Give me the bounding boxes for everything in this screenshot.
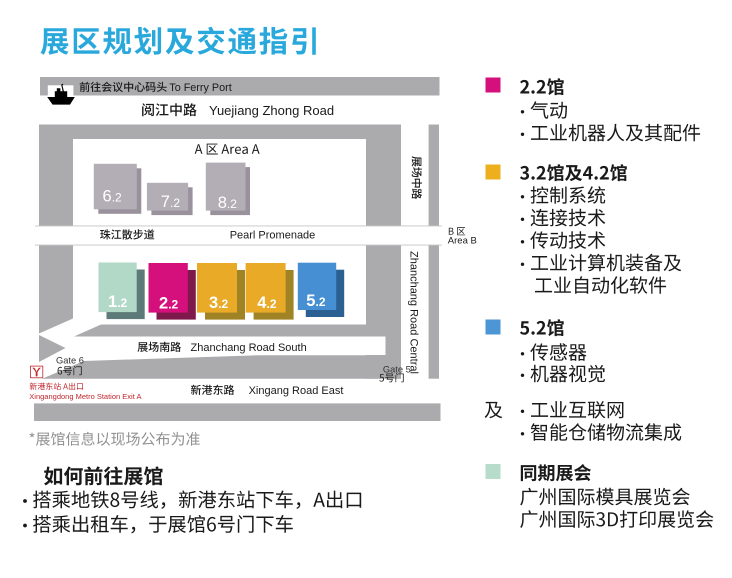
- svg-text:Zhanchang Road South: Zhanchang Road South: [191, 342, 307, 354]
- svg-text:Area B: Area B: [448, 236, 477, 247]
- svg-text:To Ferry Port: To Ferry Port: [169, 82, 231, 94]
- svg-text:6.2: 6.2: [103, 188, 123, 206]
- svg-text:Zhanchang Road Central: Zhanchang Road Central: [408, 251, 420, 374]
- svg-text:Pearl Promenade: Pearl Promenade: [230, 230, 316, 242]
- svg-text:Xingangdong Metro Station Exit: Xingangdong Metro Station Exit A: [29, 392, 141, 401]
- svg-text:5.2: 5.2: [306, 292, 326, 310]
- svg-text:7.2: 7.2: [161, 193, 181, 211]
- svg-text:3.2: 3.2: [209, 294, 229, 312]
- svg-text:Gate 6: Gate 6: [56, 356, 84, 366]
- svg-text:Xingang Road East: Xingang Road East: [249, 385, 344, 397]
- svg-text:8.2: 8.2: [218, 194, 238, 212]
- svg-text:4.2: 4.2: [257, 294, 277, 312]
- svg-text:2.2: 2.2: [159, 295, 179, 313]
- svg-text:Gate 5: Gate 5: [383, 365, 411, 375]
- svg-text:1.2: 1.2: [108, 293, 128, 311]
- svg-text:Yuejiang Zhong Road: Yuejiang Zhong Road: [209, 103, 334, 118]
